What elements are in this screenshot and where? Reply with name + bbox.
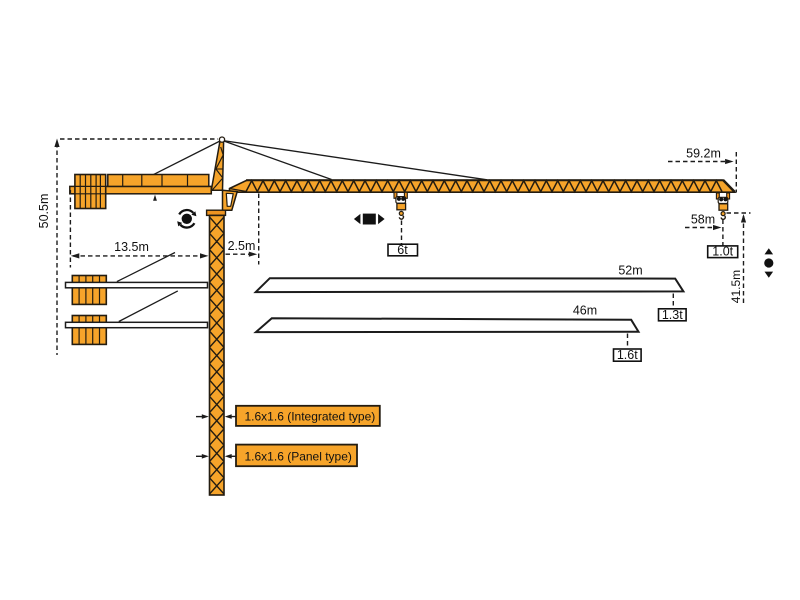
svg-text:1.3t: 1.3t [662,308,683,322]
svg-text:50.5m: 50.5m [37,194,51,229]
svg-text:59.2m: 59.2m [686,147,721,161]
svg-text:1.6x1.6 (Panel type): 1.6x1.6 (Panel type) [245,449,352,463]
svg-text:41.5m: 41.5m [729,270,743,303]
svg-text:52m: 52m [618,263,642,277]
svg-text:2.5m: 2.5m [228,239,256,253]
svg-text:58m: 58m [691,212,715,226]
svg-text:1.0t: 1.0t [712,245,733,259]
svg-text:1.6x1.6 (Integrated type): 1.6x1.6 (Integrated type) [245,410,376,424]
svg-text:1.6t: 1.6t [617,348,638,362]
svg-text:6t: 6t [397,243,408,257]
svg-text:46m: 46m [573,303,597,317]
svg-text:13.5m: 13.5m [114,240,149,254]
